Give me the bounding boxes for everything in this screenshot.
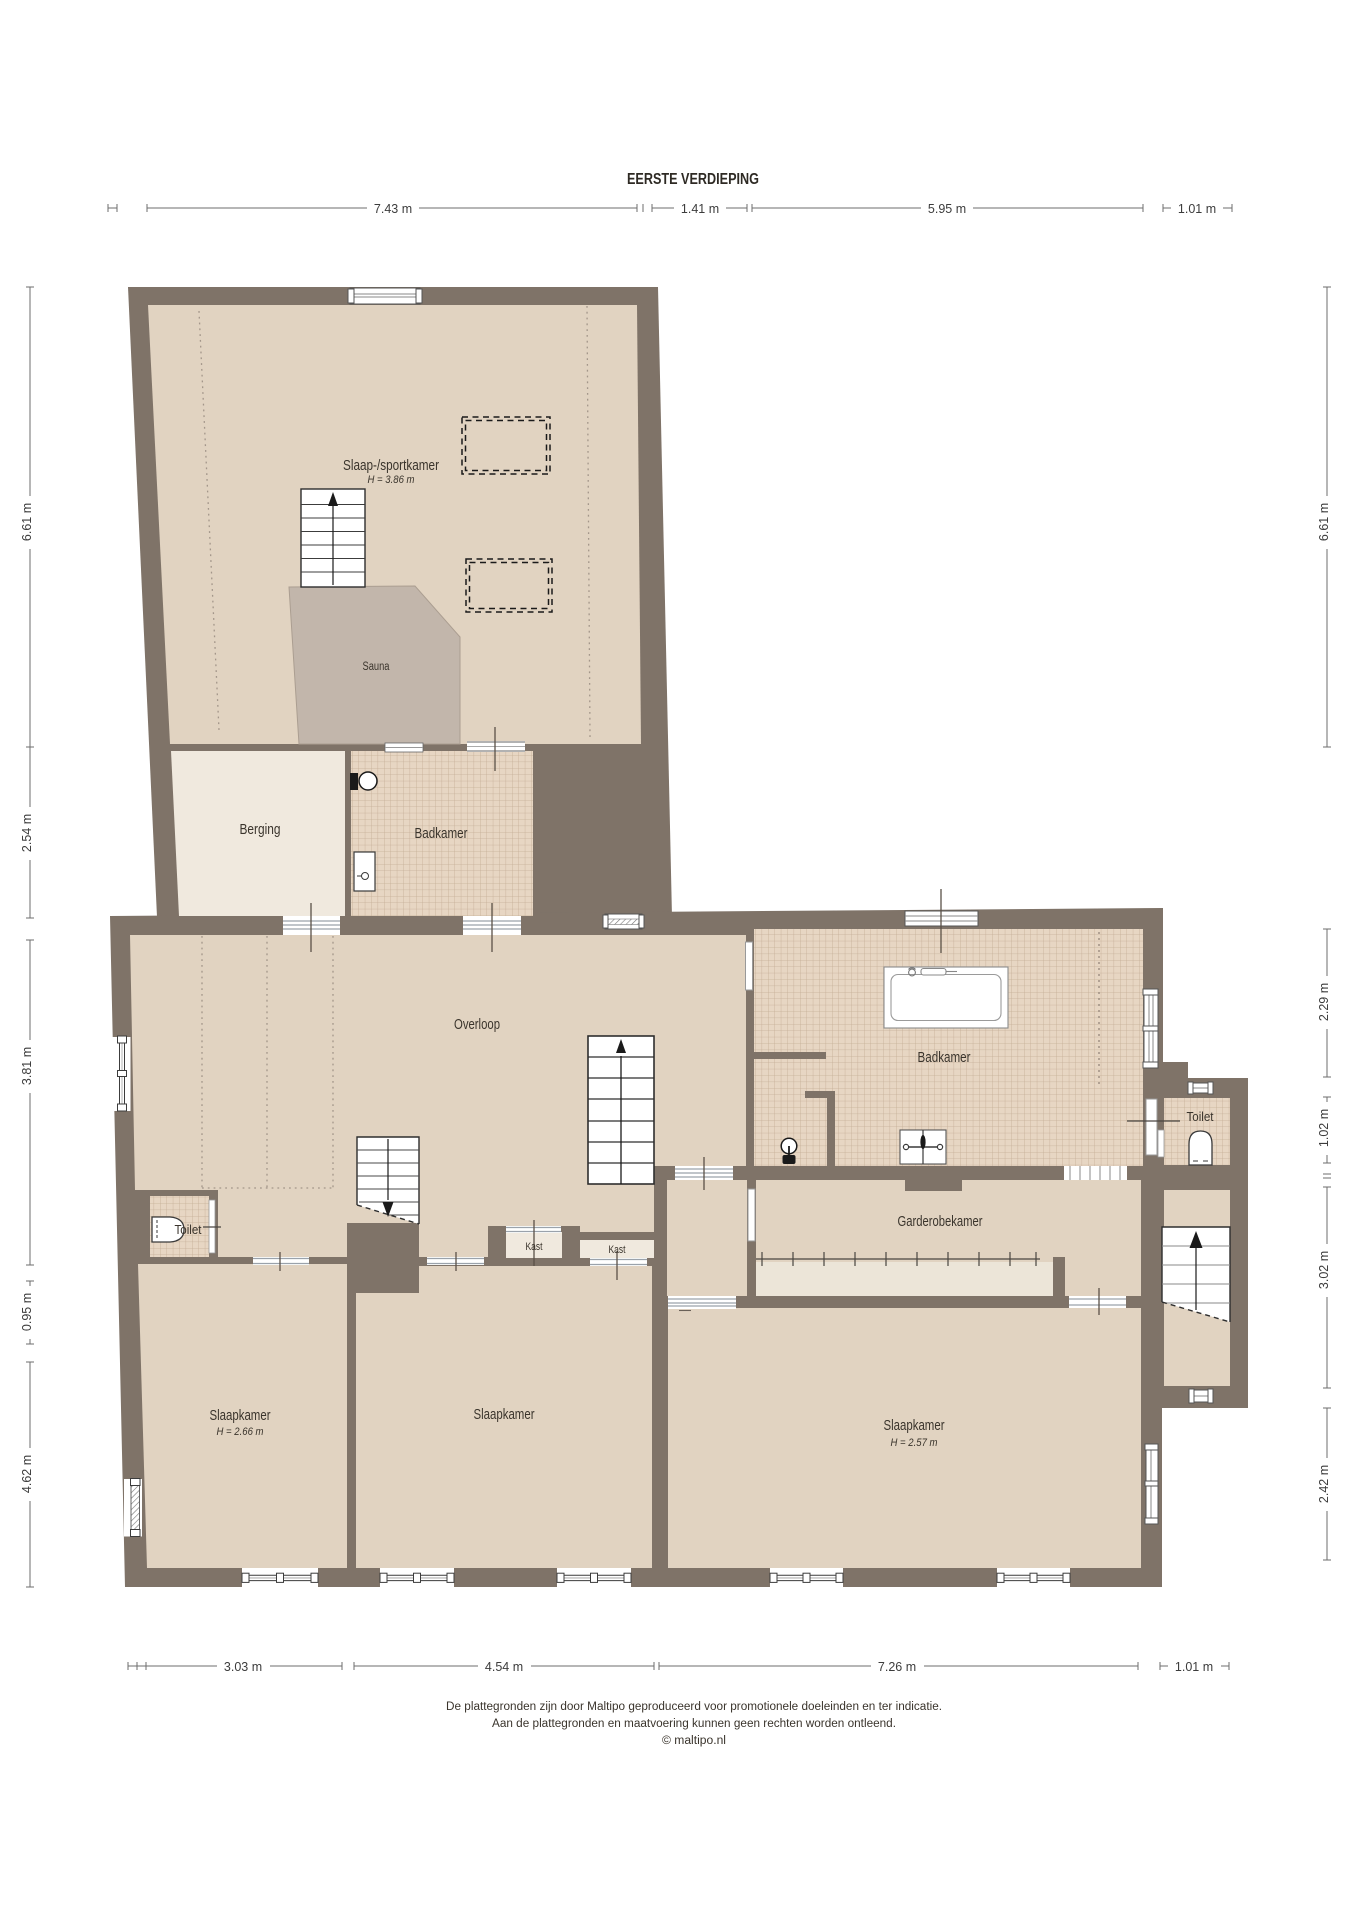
svg-text:Slaap-/sportkamer: Slaap-/sportkamer	[343, 457, 439, 474]
svg-text:1.41 m: 1.41 m	[681, 202, 719, 216]
svg-text:3.02 m: 3.02 m	[1317, 1251, 1331, 1289]
svg-text:EERSTE VERDIEPING: EERSTE VERDIEPING	[627, 171, 759, 188]
svg-text:Kast: Kast	[609, 1244, 626, 1256]
svg-text:Berging: Berging	[240, 821, 281, 838]
svg-text:7.43 m: 7.43 m	[374, 202, 412, 216]
svg-text:Slaapkamer: Slaapkamer	[474, 1406, 535, 1423]
svg-text:Garderobekamer: Garderobekamer	[898, 1213, 983, 1230]
svg-text:3.81 m: 3.81 m	[20, 1047, 34, 1085]
svg-text:Kast: Kast	[526, 1241, 543, 1253]
svg-text:3.03 m: 3.03 m	[224, 1660, 262, 1674]
svg-text:H = 3.86 m: H = 3.86 m	[368, 474, 415, 486]
svg-text:H = 2.66 m: H = 2.66 m	[217, 1426, 264, 1438]
svg-text:1.02 m: 1.02 m	[1317, 1109, 1331, 1147]
svg-text:1.01 m: 1.01 m	[1178, 202, 1216, 216]
svg-text:1.01 m: 1.01 m	[1175, 1660, 1213, 1674]
svg-text:Toilet: Toilet	[1187, 1109, 1214, 1124]
svg-text:4.62 m: 4.62 m	[20, 1455, 34, 1493]
svg-text:De plattegronden zijn door Mal: De plattegronden zijn door Maltipo gepro…	[446, 1701, 942, 1713]
svg-text:Slaapkamer: Slaapkamer	[884, 1417, 945, 1434]
svg-text:6.61 m: 6.61 m	[1317, 503, 1331, 541]
svg-text:2.29 m: 2.29 m	[1317, 983, 1331, 1021]
svg-text:Slaapkamer: Slaapkamer	[210, 1407, 271, 1424]
svg-text:Toilet: Toilet	[175, 1222, 202, 1237]
svg-text:Sauna: Sauna	[363, 661, 390, 673]
svg-text:Aan de plattegronden en maatvo: Aan de plattegronden en maatvoering kunn…	[492, 1718, 896, 1730]
svg-text:7.26 m: 7.26 m	[878, 1660, 916, 1674]
svg-text:2.54 m: 2.54 m	[20, 814, 34, 852]
svg-text:© maltipo.nl: © maltipo.nl	[662, 1735, 726, 1747]
svg-text:2.42 m: 2.42 m	[1317, 1465, 1331, 1503]
svg-text:6.61 m: 6.61 m	[20, 503, 34, 541]
svg-text:5.95 m: 5.95 m	[928, 202, 966, 216]
svg-text:Badkamer: Badkamer	[415, 825, 468, 842]
svg-text:0.95 m: 0.95 m	[20, 1293, 34, 1331]
svg-text:H = 2.57 m: H = 2.57 m	[891, 1437, 938, 1449]
svg-text:Overloop: Overloop	[454, 1016, 500, 1033]
svg-text:4.54 m: 4.54 m	[485, 1660, 523, 1674]
svg-text:Badkamer: Badkamer	[918, 1049, 971, 1066]
